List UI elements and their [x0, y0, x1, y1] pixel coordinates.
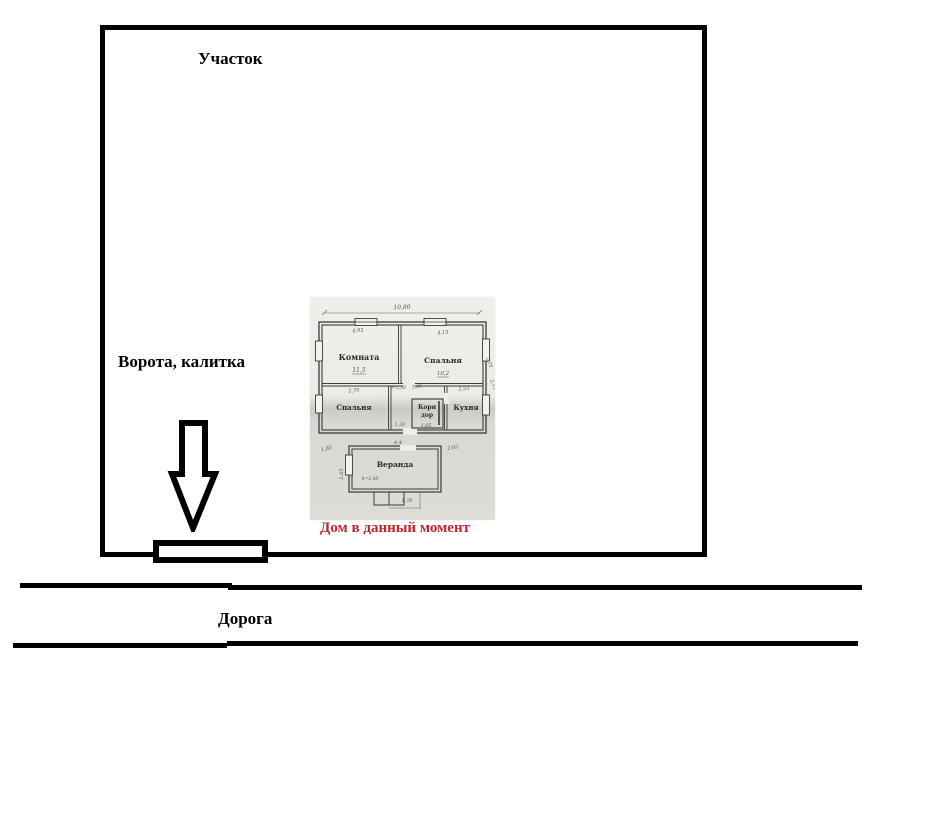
road-top-line-right — [228, 585, 862, 590]
dim-living-width: 4,93 — [351, 328, 364, 335]
road-bottom-line-right — [227, 641, 858, 646]
dim-bedroom-bottom-width: 2,70 — [347, 387, 360, 394]
dim-corridor-width: 3,08 — [412, 383, 423, 390]
dim-veranda-depth: 2,65 — [339, 468, 345, 480]
area-bedroom-top: 10,2 — [437, 371, 450, 377]
dim-corridor-door: 1,20 — [395, 422, 406, 428]
room-label-bedroom-top: Спальня — [424, 356, 462, 365]
dim-kitchen-width: 2,53 — [457, 385, 470, 392]
room-label-veranda: Веранда — [377, 460, 414, 469]
room-label-bedroom-bottom: Спальня — [336, 403, 371, 412]
room-label-corridor-2: дор — [421, 412, 433, 419]
road-label: Дорога — [218, 609, 272, 629]
dim-porch-width: 1,78 — [402, 498, 413, 504]
gate-marker — [153, 540, 268, 563]
road-top-line-left — [20, 583, 232, 588]
dim-bedroom-top-width: 4,15 — [436, 330, 449, 337]
plot-label: Участок — [198, 49, 263, 69]
floorplan-drawing: 10,80 — [310, 297, 495, 520]
diagram-canvas: Участок Ворота, калитка Дорога 10,80 — [0, 0, 926, 836]
dim-veranda-offset-right: 2,65 — [446, 444, 459, 452]
dim-veranda-width: 4,4 — [393, 440, 402, 446]
room-label-living: Комната — [339, 352, 380, 362]
road-bottom-line-left — [13, 643, 227, 648]
dim-side-right-b: 2,13 — [488, 378, 495, 391]
dim-veranda-height: h=2,45 — [362, 476, 379, 482]
gate-label: Ворота, калитка — [118, 352, 245, 372]
dim-corridor-height: h=2,50 — [390, 385, 406, 390]
floorplan-photo: 10,80 — [310, 297, 495, 520]
room-label-kitchen: Кухня — [453, 403, 478, 412]
area-living: 11,5 — [352, 367, 366, 374]
dim-veranda-offset-left: 1,85 — [321, 445, 333, 454]
down-arrow-icon — [163, 418, 223, 532]
dim-overall-width: 10,80 — [393, 304, 411, 312]
room-label-corridor-1: Кори — [418, 404, 437, 411]
dim-corridor-inner: 1,65 — [421, 423, 432, 429]
house-caption: Дом в данный момент — [320, 520, 470, 537]
